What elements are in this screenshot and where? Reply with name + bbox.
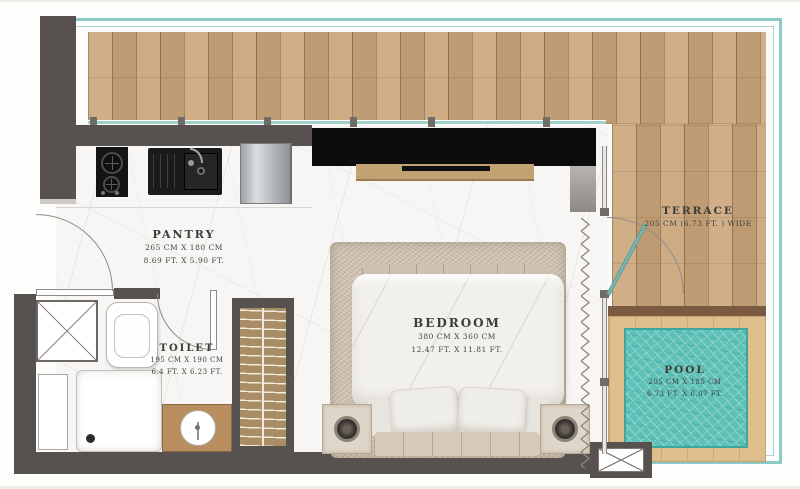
closet-rail [262, 308, 264, 446]
pillow [388, 386, 459, 437]
floor-plan: PANTRY 265 CM X 180 CM 8.69 FT. X 5.90 F… [0, 0, 800, 489]
room-size-cm: 195 CM X 190 CM [132, 355, 242, 366]
balcony-deck-top [88, 32, 766, 124]
shower-drain [86, 434, 95, 443]
sink-drain [197, 167, 205, 175]
door-frame-cap [40, 199, 76, 204]
service-shaft [38, 374, 68, 450]
room-label-terrace: TERRACE 205 CM (6.73 FT. ) WIDE [628, 205, 768, 230]
pool-deck-edge [608, 306, 766, 316]
window-right-upper [602, 146, 607, 214]
window-right-lower [602, 294, 607, 454]
room-size-cm: 265 CM X 180 CM [114, 242, 254, 254]
room-label-toilet: TOILET 195 CM X 190 CM 6.4 FT. X 6.23 FT… [132, 343, 242, 378]
cooktop-knob [115, 191, 119, 195]
room-size-ft: 12.47 FT. X 11.81 FT. [377, 344, 537, 356]
wall-toilet-top [114, 288, 160, 299]
room-label-bedroom: BEDROOM 380 CM X 360 CM 12.47 FT. X 11.8… [377, 316, 537, 355]
room-title: TERRACE [628, 205, 768, 217]
mullion-post [428, 117, 435, 127]
mullion-clip [600, 378, 609, 386]
room-size-ft: 8.69 FT. X 5.90 FT. [114, 255, 254, 267]
counter-edge [56, 207, 312, 208]
room-size-cm: 205 CM (6.73 FT. ) WIDE [628, 218, 768, 230]
speaker-icon [334, 416, 360, 442]
room-title: PANTRY [114, 228, 254, 241]
sink-drainboard [153, 154, 181, 188]
wall-left-lower [14, 294, 36, 474]
tv-bar [402, 166, 490, 171]
mullion-post [350, 117, 357, 127]
mullion-clip [600, 208, 609, 216]
fridge [240, 143, 292, 204]
room-title: POOL [626, 364, 744, 376]
room-label-pool: POOL 205 CM X 185 CM 6.73 FT. X 6.07 FT. [626, 364, 744, 400]
faucet-base [188, 160, 194, 166]
burner-icon [101, 152, 123, 174]
basin-drain [195, 425, 200, 430]
elevator-shaft-icon [36, 300, 98, 362]
cooktop-knob [101, 191, 105, 195]
shelf-unit [570, 166, 596, 212]
headboard-tufts [374, 432, 540, 456]
room-size-cm: 380 CM X 360 CM [377, 331, 537, 343]
room-label-pantry: PANTRY 265 CM X 180 CM 8.69 FT. X 5.90 F… [114, 228, 254, 266]
room-size-ft: 6.73 FT. X 6.07 FT. [626, 389, 744, 400]
curtain [578, 218, 592, 468]
room-size-cm: 205 CM X 185 CM [626, 377, 744, 388]
pillow [457, 386, 527, 435]
mullion-post [543, 117, 550, 127]
wall-left-upper [40, 16, 76, 204]
room-title: BEDROOM [377, 316, 537, 330]
room-size-ft: 6.4 FT. X 6.23 FT. [132, 367, 242, 378]
room-title: TOILET [132, 343, 242, 354]
speaker-icon [552, 416, 578, 442]
wardrobe-black [312, 128, 596, 166]
